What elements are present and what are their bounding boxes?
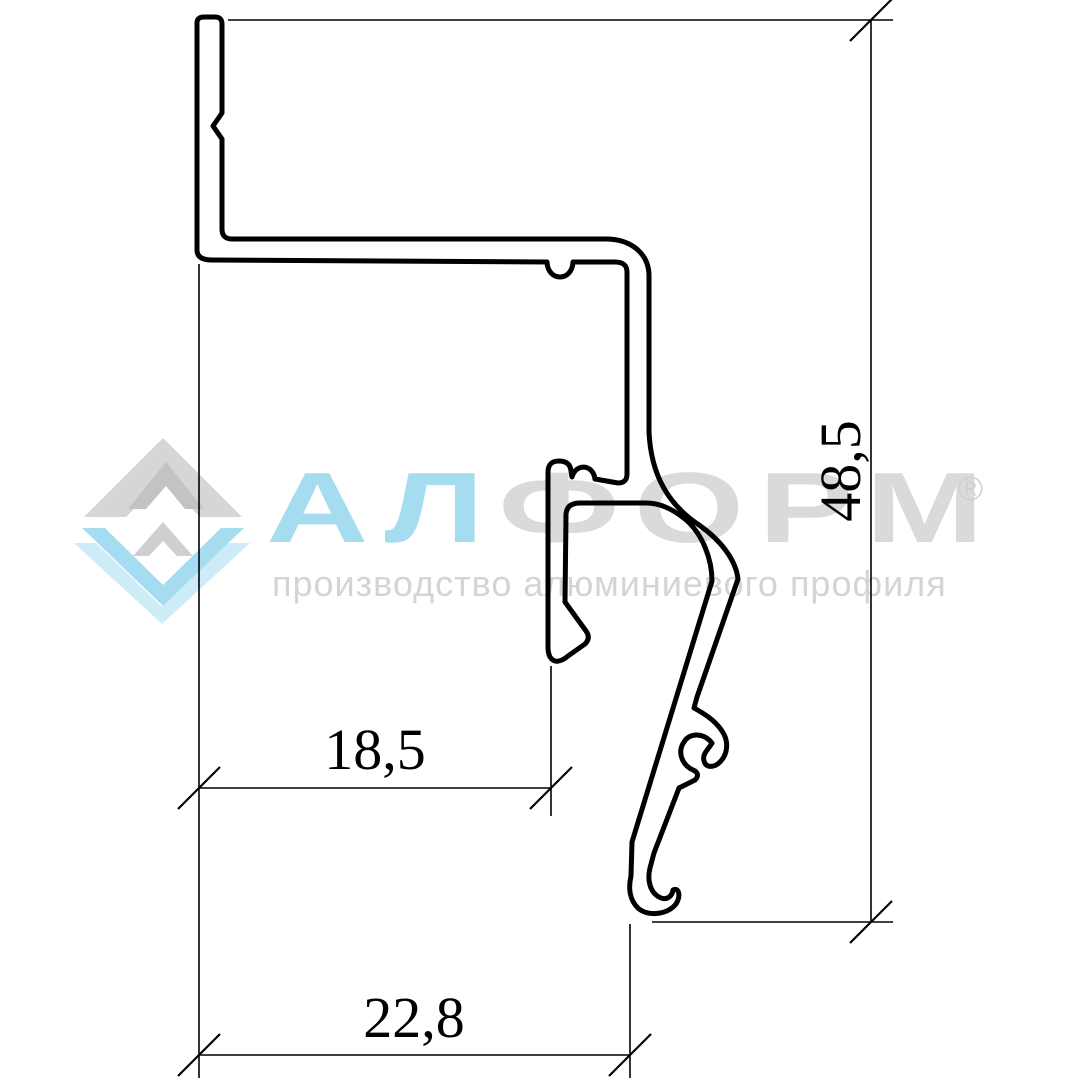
- profile-outline: [197, 17, 738, 914]
- profile-drawing-canvas: 18,5 22,8 48,5: [0, 0, 1080, 1080]
- dimension-height: 48,5: [808, 0, 892, 943]
- dimension-label-top-width: 18,5: [324, 717, 426, 782]
- dimension-top-width: 18,5: [178, 717, 572, 809]
- dimension-label-height: 48,5: [808, 420, 873, 522]
- dimension-bottom-width: 22,8: [178, 985, 651, 1076]
- dimension-label-bottom-width: 22,8: [363, 985, 465, 1050]
- technical-drawing-page: АЛФОРМ ® производство алюминиевого профи…: [0, 0, 1080, 1080]
